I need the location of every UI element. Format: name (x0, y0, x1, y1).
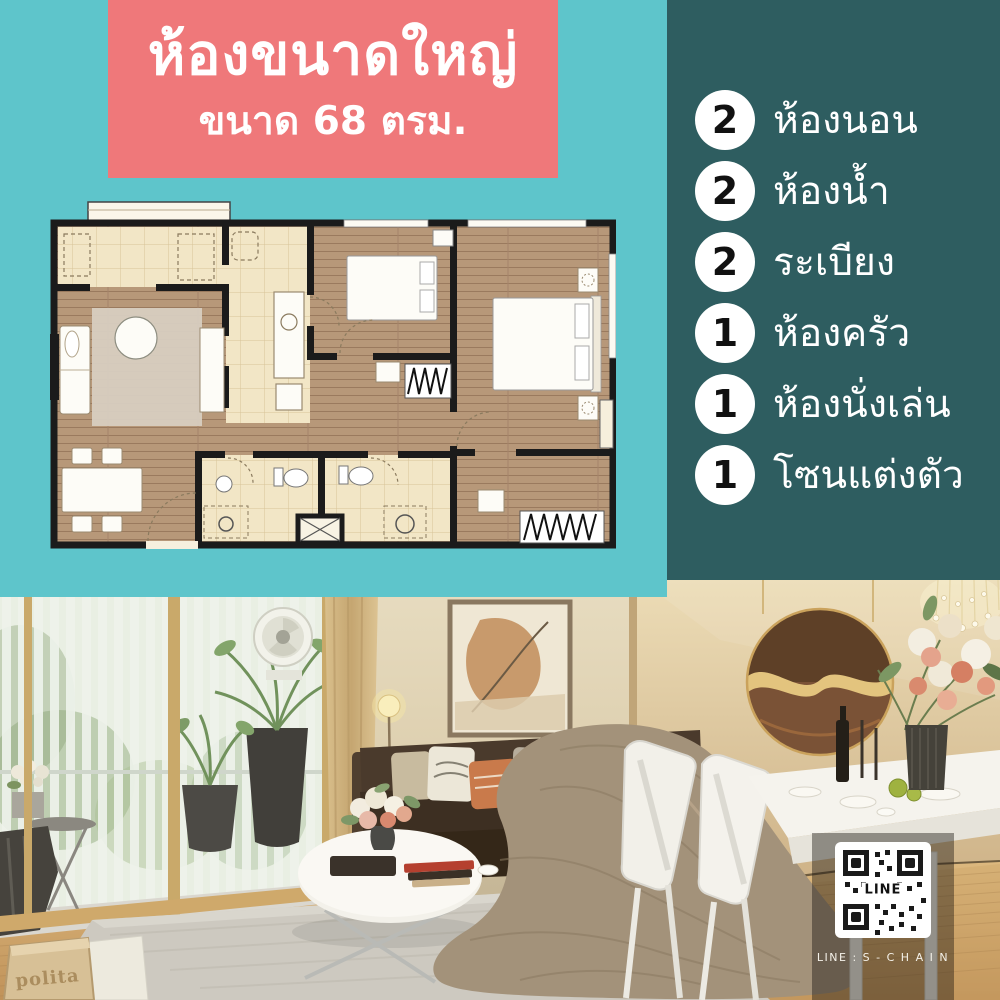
feature-label: ระเบียง (773, 231, 895, 293)
qr-code: LINE (835, 842, 931, 938)
count-badge: 2 (695, 90, 755, 150)
poster-title: ห้องขนาดใหญ่ (148, 26, 519, 86)
feature-label: ห้องนั่งเล่น (773, 373, 951, 435)
floor-plan (48, 196, 616, 584)
count-badge: 1 (695, 374, 755, 434)
feature-bedrooms: 2 ห้องนอน (695, 84, 964, 155)
plan-balcony-2 (600, 400, 613, 448)
feature-dressing-zone: 1 โซนแต่งตัว (695, 439, 964, 510)
feature-balconies: 2 ระเบียง (695, 226, 964, 297)
feature-label: โซนแต่งตัว (773, 444, 964, 506)
feature-livingroom: 1 ห้องนั่งเล่น (695, 368, 964, 439)
feature-kitchen: 1 ห้องครัว (695, 297, 964, 368)
wall-art (450, 602, 570, 735)
feature-label: ห้องน้ำ (773, 160, 890, 222)
feature-label: ห้องนอน (773, 89, 918, 151)
feature-list: 2 ห้องนอน 2 ห้องน้ำ 2 ระเบียง 1 ห้องครัว… (695, 84, 964, 510)
qr-panel: LINE LINE : S - C H A I N (812, 833, 954, 1000)
count-badge: 2 (695, 161, 755, 221)
plan-living-room (60, 308, 224, 426)
feature-bathrooms: 2 ห้องน้ำ (695, 155, 964, 226)
magazine-box: polita (4, 936, 148, 1000)
poster-subtitle: ขนาด 68 ตรม. (199, 90, 468, 152)
plan-balcony-1 (58, 227, 226, 287)
teal-divider-strip (0, 580, 667, 597)
qr-line-label: LINE (862, 883, 905, 898)
count-badge: 1 (695, 445, 755, 505)
title-banner: ห้องขนาดใหญ่ ขนาด 68 ตรม. (108, 0, 558, 178)
line-id-caption: LINE : S - C H A I N (817, 951, 949, 964)
table-books (404, 860, 474, 887)
promo-poster: ห้องขนาดใหญ่ ขนาด 68 ตรม. 2 ห้องนอน 2 ห้… (0, 0, 1000, 1000)
count-badge: 1 (695, 303, 755, 363)
count-badge: 2 (695, 232, 755, 292)
feature-label: ห้องครัว (773, 302, 910, 364)
